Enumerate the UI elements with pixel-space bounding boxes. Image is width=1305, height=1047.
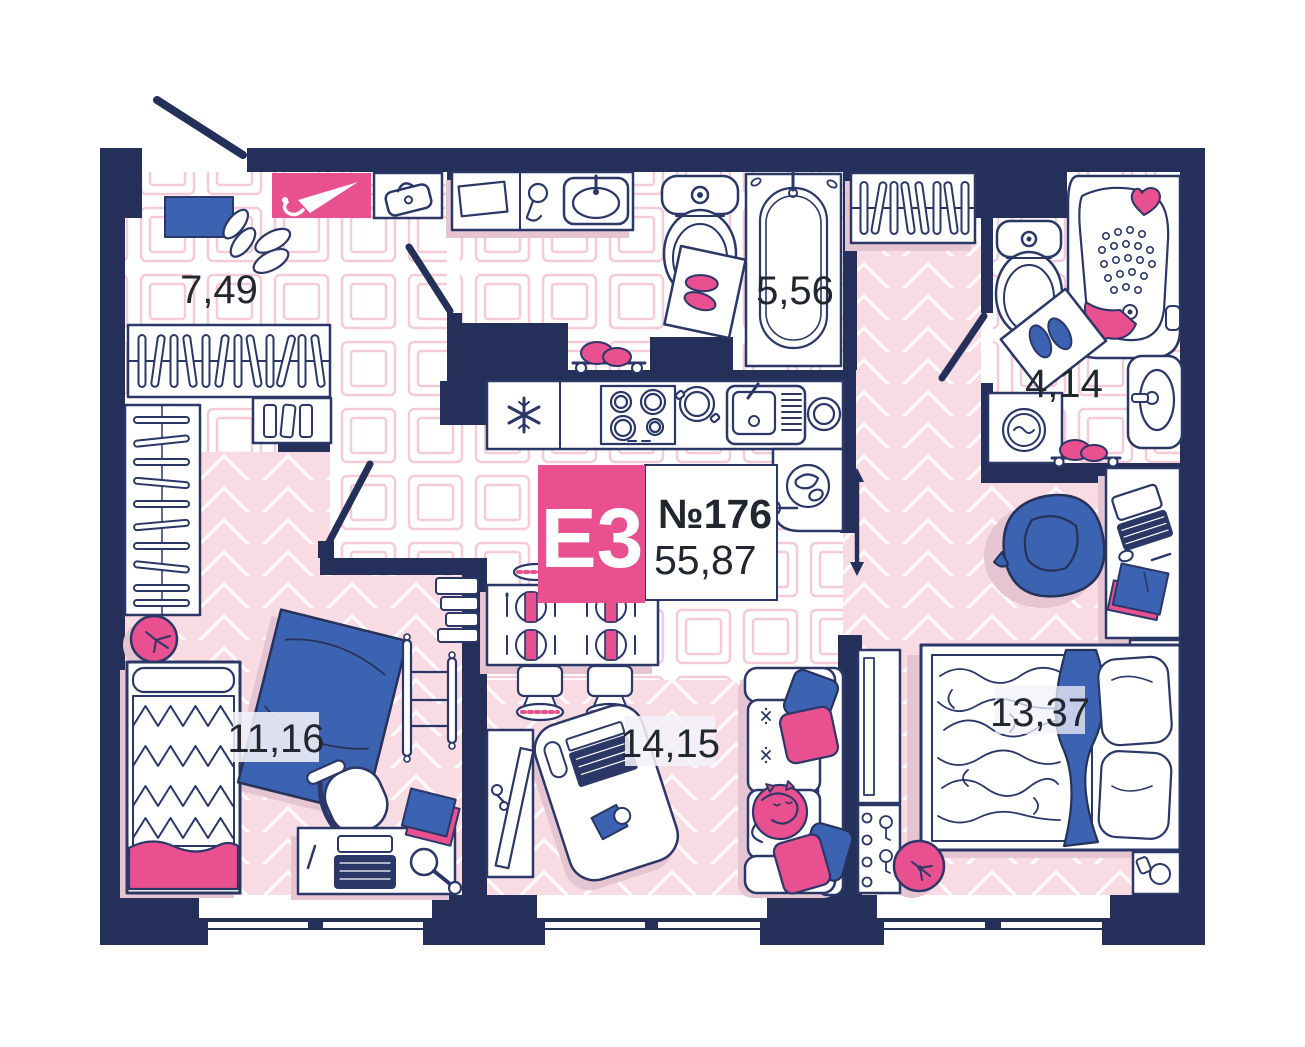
tv-console: [487, 730, 533, 877]
kitchen-sink-icon: [727, 384, 805, 444]
floor-plan-page: 7,49 5,56 4,14 11,16 14,15 13,37 E3 №176…: [0, 0, 1305, 1047]
area-label-bathroom: 5,56: [756, 269, 834, 313]
bathroom-sink-2: [1128, 356, 1182, 448]
wall-kitchen-band: [447, 370, 855, 381]
counter-corner: [772, 449, 843, 531]
bathroom-vanity: [452, 172, 633, 230]
coat-rack: [128, 325, 330, 397]
floor-plan: 7,49 5,56 4,14 11,16 14,15 13,37 E3 №176…: [0, 0, 1305, 1047]
wall-toilet-left-a: [981, 218, 993, 313]
unit-total-area: 55,87: [654, 537, 757, 583]
unit-layout-code: E3: [541, 491, 644, 585]
wardrobe: [125, 405, 200, 615]
unit-number: №176: [658, 491, 772, 537]
bed-master: [921, 645, 1180, 850]
bathroom-sink-icon: [564, 176, 628, 224]
tray-icon: [459, 182, 508, 217]
area-label-toilet: 4,14: [1025, 362, 1103, 406]
laptop-icon: [334, 836, 396, 889]
wall-kitchen-block: [440, 381, 487, 425]
nightstand-master: [1133, 852, 1180, 894]
wall-right: [1180, 148, 1205, 945]
unit-info-card: E3 №176 55,87: [538, 465, 777, 603]
bottle-shelf: [253, 398, 331, 443]
sofa: [745, 668, 854, 896]
stove-icon: [601, 386, 675, 444]
bag-shelf: [374, 173, 442, 218]
entrance-door-leaf: [157, 100, 243, 155]
shelf-stack: [436, 578, 478, 642]
desk-2: [1106, 468, 1180, 638]
pouf-small: [131, 616, 177, 662]
umbrella-shelf: [272, 173, 371, 218]
corridor-closet: [851, 173, 975, 243]
area-label-hall: 7,49: [180, 268, 258, 312]
area-label-bedroom-small: 11,16: [227, 717, 324, 761]
area-label-bedroom-master: 13,37: [990, 691, 1090, 735]
plate-icon: [808, 398, 840, 430]
dresser-key-panel: [858, 805, 900, 893]
pouf-master: [894, 841, 944, 891]
kitchen-counter: [487, 381, 843, 449]
wall-duct: [975, 148, 1067, 218]
wall-hall-bedroom-b: [320, 558, 487, 575]
dresser: [858, 650, 900, 803]
area-label-living: 14,15: [620, 722, 720, 766]
